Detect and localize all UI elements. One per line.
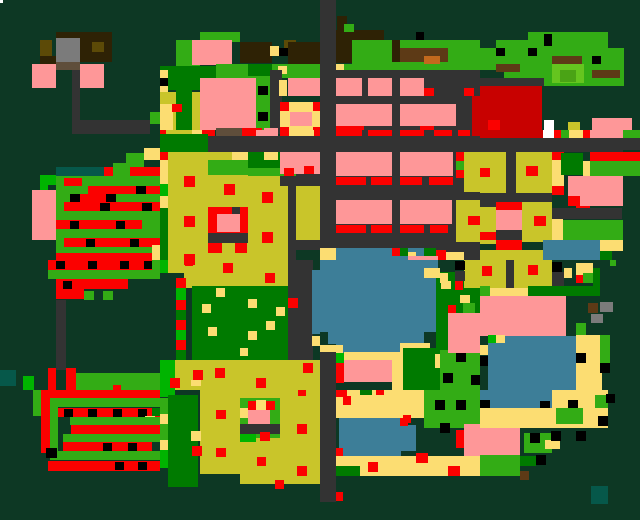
map-tile-black	[130, 239, 139, 247]
map-tile-blue	[320, 260, 438, 292]
map-tile-road	[288, 260, 313, 362]
map-tile-pink	[336, 78, 362, 96]
map-tile-black	[455, 261, 465, 270]
map-tile-red	[468, 216, 480, 225]
map-tile-yellow	[266, 321, 275, 330]
map-tile-black	[103, 443, 112, 451]
map-tile-red	[336, 126, 364, 130]
map-tile-red	[80, 194, 106, 202]
map-tile-red	[224, 184, 235, 195]
map-tile-dgreen	[600, 251, 612, 260]
map-tile-black	[46, 448, 57, 458]
map-tile-ggreen	[23, 376, 34, 390]
map-tile-gray	[56, 38, 80, 62]
map-tile-red	[456, 152, 464, 161]
map-tile-black	[416, 32, 424, 40]
map-tile-green	[465, 415, 480, 425]
map-tile-ggreen	[176, 288, 186, 300]
map-tile-pink	[192, 40, 232, 65]
map-tile-red	[496, 240, 522, 250]
map-tile-pink	[592, 118, 632, 130]
map-tile-dbrown	[392, 40, 400, 62]
map-tile-red	[480, 232, 496, 240]
map-tile-red	[488, 120, 500, 130]
map-tile-green	[610, 260, 616, 266]
map-tile-black	[70, 194, 80, 202]
map-tile-red	[64, 178, 82, 186]
map-tile-green	[150, 112, 160, 124]
map-tile-ggreen	[160, 260, 168, 273]
map-tile-green	[113, 163, 130, 177]
map-tile-white	[544, 120, 554, 130]
map-tile-red	[176, 300, 186, 310]
map-tile-green	[70, 417, 160, 425]
map-tile-red	[430, 225, 448, 233]
map-tile-ggreen	[488, 335, 496, 343]
map-tile-teal	[591, 486, 608, 504]
map-tile-red	[456, 170, 464, 178]
map-tile-black	[496, 48, 505, 56]
map-tile-red	[170, 378, 180, 388]
map-tile-gray	[591, 314, 603, 323]
map-tile-pink	[200, 78, 256, 130]
map-tile-black	[551, 431, 561, 441]
map-tile-red	[371, 225, 392, 233]
map-tile-brown	[496, 64, 520, 72]
map-tile-green	[208, 160, 248, 175]
map-tile-ggreen	[40, 175, 56, 185]
map-tile-teal	[56, 167, 104, 177]
map-tile-black	[279, 48, 289, 56]
map-tile-yellow	[569, 130, 583, 138]
map-tile-black	[530, 433, 540, 443]
map-tile-black	[576, 431, 586, 441]
map-tile-red	[336, 177, 366, 185]
map-tile-red	[176, 278, 186, 288]
map-tile-yellow	[545, 440, 560, 449]
map-tile-road	[552, 208, 622, 219]
map-tile-dgreen	[336, 466, 360, 476]
map-tile-khaki	[480, 250, 552, 260]
map-tile-red	[280, 102, 289, 111]
map-tile-red	[56, 220, 142, 229]
map-tile-black	[435, 400, 445, 410]
map-tile-green	[256, 76, 270, 134]
map-tile-ggreen	[160, 450, 168, 468]
map-tile-red	[434, 130, 452, 136]
map-tile-black	[480, 356, 488, 366]
map-tile-green	[84, 291, 94, 300]
map-tile-pink	[368, 78, 392, 96]
map-tile-red	[376, 390, 384, 395]
map-tile-red	[41, 390, 50, 453]
map-tile-road	[496, 230, 522, 240]
map-tile-green	[583, 273, 593, 283]
map-tile-yellow	[216, 288, 225, 297]
map-tile-red	[464, 88, 474, 96]
map-tile-green	[590, 161, 640, 176]
game-minimap	[0, 0, 640, 520]
map-tile-yellow	[496, 335, 505, 343]
map-tile-red	[534, 216, 546, 226]
map-tile-khaki	[464, 152, 480, 192]
map-tile-pink	[290, 112, 312, 126]
map-tile-red	[262, 232, 273, 243]
map-tile-red	[184, 216, 195, 227]
map-tile-pink	[336, 200, 392, 224]
map-tile-red	[104, 167, 113, 177]
map-tile-red	[458, 130, 470, 136]
map-tile-red	[400, 225, 424, 233]
map-tile-blue	[400, 425, 416, 451]
map-tile-road	[320, 0, 336, 132]
map-tile-yellow	[144, 148, 160, 160]
map-tile-yellow	[152, 245, 160, 260]
map-tile-red	[368, 130, 392, 136]
map-tile-yellow	[564, 268, 572, 278]
map-tile-red	[552, 186, 564, 195]
map-tile-ggreen	[160, 184, 168, 196]
map-tile-red	[336, 492, 343, 501]
map-tile-yellow	[446, 252, 464, 260]
map-tile-green	[480, 286, 490, 296]
map-tile-dgreen	[248, 64, 272, 76]
map-tile-green	[561, 130, 569, 138]
map-tile-red	[192, 446, 202, 456]
map-tile-red	[216, 410, 226, 419]
map-tile-red	[262, 192, 273, 203]
map-tile-khaki	[296, 186, 320, 240]
map-tile-black	[64, 409, 73, 417]
map-tile-red	[424, 88, 434, 96]
map-tile-dgreen	[561, 153, 583, 175]
map-tile-red	[56, 289, 84, 299]
map-tile-olive	[92, 42, 104, 52]
map-tile-yellow	[160, 440, 168, 450]
map-tile-yellow	[344, 352, 404, 360]
map-tile-red	[576, 275, 583, 283]
map-tile-khaki	[568, 122, 580, 130]
map-tile-ggreen	[176, 330, 186, 340]
map-tile-dgreen	[160, 134, 208, 152]
map-tile-yellow	[248, 299, 257, 308]
map-tile-red	[184, 176, 195, 187]
map-tile-dgreen	[528, 286, 600, 296]
map-tile-red	[216, 448, 226, 457]
map-tile-red	[304, 166, 314, 174]
map-tile-road	[455, 271, 465, 281]
map-tile-pink	[32, 190, 56, 240]
map-tile-pink	[400, 152, 453, 176]
map-tile-red	[416, 453, 428, 463]
map-tile-black	[115, 462, 124, 470]
map-tile-brown	[520, 471, 529, 480]
map-tile-red	[64, 238, 160, 247]
map-tile-dgreen	[400, 248, 408, 256]
map-tile-yellow	[232, 152, 248, 160]
map-tile-red	[288, 298, 298, 308]
map-tile-yellow	[552, 219, 563, 240]
map-tile-blue	[328, 332, 424, 344]
map-tile-yellow	[191, 431, 201, 441]
map-tile-red	[193, 370, 203, 380]
map-tile-black	[592, 56, 601, 64]
map-tile-black	[63, 281, 72, 289]
map-tile-green	[563, 220, 623, 240]
map-tile-green	[33, 390, 41, 416]
map-tile-blue	[488, 336, 576, 390]
map-tile-black	[88, 409, 97, 417]
map-tile-green	[103, 291, 113, 300]
map-tile-pink	[480, 296, 566, 336]
map-tile-yellow	[160, 160, 168, 184]
map-tile-green	[63, 434, 160, 442]
map-tile-black	[136, 186, 146, 194]
map-tile-yellow	[276, 307, 285, 316]
map-tile-black	[138, 462, 147, 470]
map-tile-green	[480, 455, 520, 476]
map-tile-red	[554, 130, 561, 138]
map-tile-red	[172, 104, 182, 112]
map-tile-dred	[480, 130, 543, 138]
map-tile-road	[72, 70, 80, 122]
map-tile-white	[0, 0, 3, 3]
map-tile-pink	[400, 78, 424, 96]
map-tile-red	[284, 168, 294, 176]
map-tile-red	[113, 385, 121, 390]
map-tile-ggreen	[336, 353, 344, 363]
map-tile-red	[257, 457, 266, 466]
map-tile-green	[576, 323, 586, 335]
map-tile-ggreen	[240, 434, 256, 442]
map-tile-red	[400, 418, 408, 426]
map-tile-yellow	[240, 408, 248, 418]
map-tile-red	[336, 363, 344, 383]
map-tile-green	[556, 408, 583, 424]
map-tile-red	[429, 177, 453, 185]
map-tile-red	[480, 168, 490, 177]
map-tile-pink	[248, 410, 270, 424]
map-tile-yellow	[480, 345, 488, 355]
map-tile-road	[506, 152, 516, 193]
map-tile-red	[343, 396, 351, 405]
map-tile-black	[106, 194, 116, 202]
map-tile-red	[280, 127, 289, 136]
map-tile-red	[275, 480, 284, 489]
map-tile-black	[70, 221, 79, 229]
map-tile-dgreen	[160, 208, 168, 260]
map-tile-road	[232, 207, 240, 215]
map-tile-pink	[217, 214, 240, 232]
map-tile-red	[260, 432, 270, 441]
map-tile-yellow	[460, 295, 470, 303]
map-tile-red	[400, 177, 422, 185]
map-tile-black	[258, 112, 268, 121]
map-tile-road	[506, 260, 514, 288]
map-tile-blue	[318, 292, 436, 332]
map-tile-black	[471, 375, 480, 385]
pixel-map-canvas	[0, 0, 640, 520]
map-tile-white	[543, 130, 554, 138]
map-tile-red	[368, 462, 378, 472]
map-tile-red	[246, 130, 256, 136]
map-tile-pink	[32, 64, 56, 88]
map-tile-green	[623, 130, 640, 138]
map-tile-black	[258, 86, 268, 95]
map-tile-black	[576, 353, 586, 363]
map-tile-red	[482, 266, 492, 276]
map-tile-red	[66, 368, 76, 390]
map-tile-khaki	[464, 260, 480, 288]
map-tile-black	[606, 394, 615, 403]
map-tile-red	[298, 390, 306, 396]
map-tile-red	[185, 260, 193, 266]
map-tile-road	[552, 272, 564, 286]
map-tile-pink	[336, 104, 392, 126]
map-tile-black	[86, 239, 95, 247]
map-tile-red	[590, 152, 640, 161]
map-tile-road	[56, 300, 66, 370]
map-tile-green	[58, 398, 160, 407]
map-tile-red	[456, 430, 465, 448]
map-tile-black	[88, 261, 97, 269]
map-tile-black	[56, 261, 65, 269]
map-tile-black	[142, 203, 152, 211]
map-tile-red	[420, 126, 434, 130]
map-tile-green	[57, 451, 160, 460]
map-tile-yellow	[392, 360, 404, 390]
map-tile-road	[296, 240, 320, 250]
map-tile-pink	[80, 64, 104, 88]
map-tile-yellow	[202, 304, 211, 313]
map-tile-yellow	[248, 331, 257, 340]
map-tile-red	[583, 130, 590, 138]
map-tile-pink	[590, 130, 623, 138]
map-tile-yellow	[279, 80, 287, 96]
map-tile-brown	[592, 70, 620, 78]
map-tile-road	[72, 120, 150, 134]
map-tile-yellow	[191, 380, 201, 386]
map-tile-red	[297, 424, 307, 434]
map-tile-red	[448, 466, 460, 476]
map-tile-black	[440, 423, 450, 433]
map-tile-yellow	[264, 152, 278, 160]
map-tile-black	[536, 455, 546, 465]
map-tile-yellow	[256, 400, 266, 410]
map-tile-yellow	[583, 161, 591, 176]
map-tile-red	[160, 152, 168, 160]
map-tile-red	[176, 320, 186, 330]
map-tile-blue	[339, 418, 401, 456]
map-tile-road	[480, 138, 640, 152]
map-tile-red	[88, 186, 160, 194]
map-tile-dgreen	[176, 350, 186, 360]
map-tile-green	[456, 161, 464, 170]
map-tile-pink	[344, 360, 392, 382]
map-tile-dgreen	[360, 390, 372, 395]
map-tile-yellow	[480, 408, 608, 428]
map-tile-yellow	[160, 196, 168, 208]
map-tile-red	[71, 425, 160, 434]
map-tile-red	[48, 368, 56, 390]
map-tile-red	[496, 202, 522, 210]
map-tile-black	[456, 400, 466, 410]
map-tile-red	[336, 130, 362, 136]
map-tile-dbrown	[40, 56, 56, 64]
map-tile-black	[120, 261, 129, 269]
map-tile-brown	[588, 303, 598, 313]
map-tile-yellow	[208, 327, 217, 336]
map-tile-red	[208, 243, 222, 253]
map-tile-pink	[400, 200, 452, 224]
map-tile-red	[215, 368, 225, 378]
map-tile-red	[235, 243, 247, 253]
map-tile-gray	[600, 302, 613, 312]
map-tile-road	[480, 78, 544, 86]
map-tile-red	[56, 253, 152, 260]
map-tile-black	[144, 261, 153, 269]
map-tile-road	[208, 233, 248, 243]
map-tile-red	[256, 378, 266, 388]
map-tile-red	[266, 401, 275, 410]
map-tile-yellow	[240, 348, 248, 356]
map-tile-red	[392, 248, 400, 256]
map-tile-yellow	[424, 268, 440, 278]
map-tile-dbrown	[288, 42, 320, 65]
map-tile-yellow	[160, 104, 173, 130]
map-tile-green	[344, 24, 354, 32]
map-tile-red	[265, 273, 275, 283]
map-tile-pink	[496, 210, 522, 230]
map-tile-red	[528, 265, 538, 275]
map-tile-green	[160, 398, 168, 414]
map-tile-yellow	[440, 273, 448, 283]
map-tile-dgreen	[176, 310, 186, 320]
map-tile-red	[50, 390, 160, 398]
map-tile-pink	[256, 130, 272, 136]
map-tile-black	[160, 78, 168, 86]
map-tile-red	[455, 281, 463, 290]
map-tile-mgreen	[560, 70, 576, 82]
map-tile-red	[130, 167, 160, 177]
map-tile-red	[400, 130, 424, 136]
map-tile-red	[176, 340, 186, 350]
map-tile-black	[128, 443, 137, 451]
map-tile-pink	[288, 78, 322, 96]
map-tile-pink	[448, 313, 480, 353]
map-tile-black	[544, 34, 552, 46]
map-tile-yellow	[270, 46, 279, 56]
map-tile-road	[208, 136, 320, 152]
map-tile-red	[336, 390, 347, 397]
map-tile-dred	[472, 130, 480, 136]
map-tile-green	[48, 270, 160, 279]
map-tile-red	[568, 196, 580, 206]
map-tile-yellow	[600, 240, 623, 251]
map-tile-red	[248, 401, 256, 410]
map-tile-black	[138, 409, 147, 417]
map-tile-road	[288, 186, 296, 260]
map-tile-yellow	[290, 130, 314, 136]
map-tile-black	[116, 221, 125, 229]
map-tile-brown	[552, 56, 582, 65]
map-tile-pink	[464, 424, 520, 456]
map-tile-red	[448, 305, 456, 313]
map-tile-red	[303, 363, 313, 373]
map-tile-dgreen	[152, 408, 160, 416]
map-tile-black	[600, 363, 610, 373]
map-tile-yellow	[312, 336, 320, 346]
